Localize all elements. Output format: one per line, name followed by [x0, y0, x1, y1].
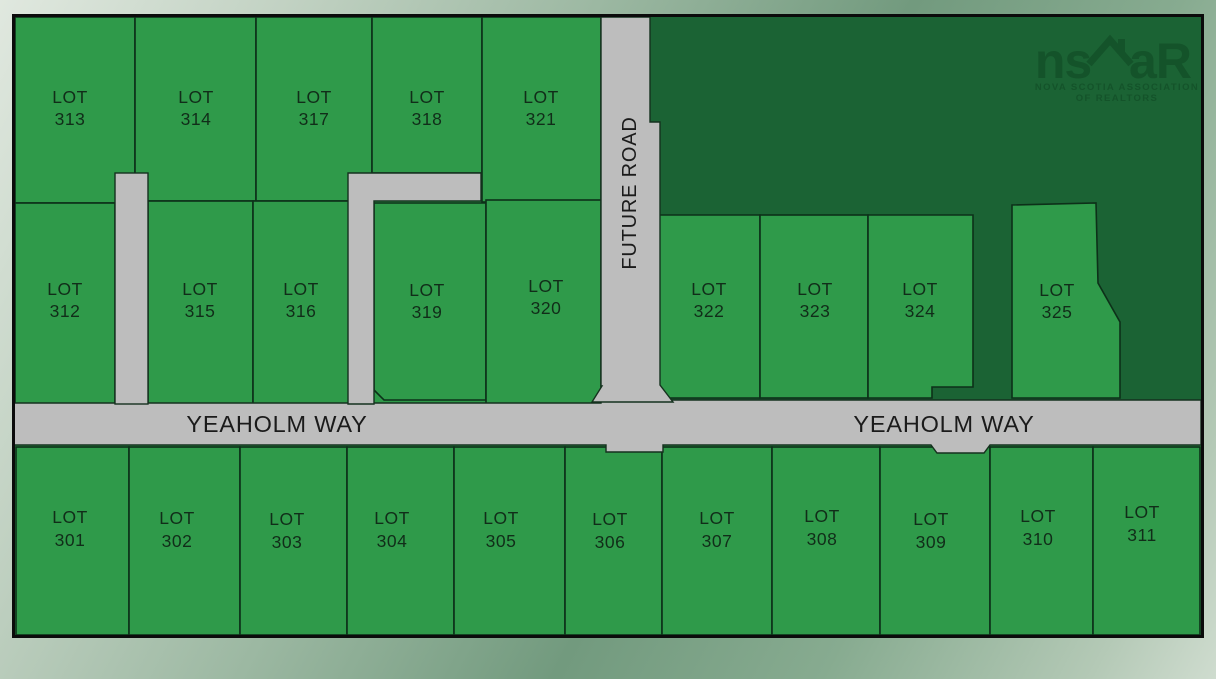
- logo-text-right: aR: [1129, 33, 1192, 89]
- yeaholm-way-label-east: YEAHOLM WAY: [853, 411, 1034, 437]
- lot-319-word: LOT: [409, 280, 445, 300]
- lot-309-number: 309: [916, 532, 947, 552]
- lot-302-word: LOT: [159, 508, 195, 528]
- house-chimney-icon: [1118, 39, 1125, 52]
- lot-303-word: LOT: [269, 509, 305, 529]
- lot-324-number: 324: [905, 301, 936, 321]
- lot-301-word: LOT: [52, 507, 88, 527]
- lot-304-number: 304: [377, 531, 408, 551]
- lot-307-number: 307: [702, 531, 733, 551]
- lot-322-number: 322: [694, 301, 725, 321]
- lot-321-word: LOT: [523, 87, 559, 107]
- lot-311-number: 311: [1127, 525, 1156, 545]
- logo-tagline-line1: NOVA SCOTIA ASSOCIATION: [1035, 82, 1199, 93]
- lot-314-word: LOT: [178, 87, 214, 107]
- lot-308-word: LOT: [804, 506, 840, 526]
- lot-318-word: LOT: [409, 87, 445, 107]
- lot-310-word: LOT: [1020, 506, 1056, 526]
- lot-313-number: 313: [55, 109, 86, 129]
- plat-map: LOT313 LOT314 LOT317 LOT318 LOT321 LOT31…: [0, 0, 1216, 679]
- lot-310-number: 310: [1023, 529, 1054, 549]
- lot-313-word: LOT: [52, 87, 88, 107]
- lot-306-number: 306: [595, 532, 626, 552]
- lot-315-number: 315: [185, 301, 216, 321]
- lot-316-number: 316: [286, 301, 317, 321]
- lot-322-word: LOT: [691, 279, 727, 299]
- lot-323-number: 323: [800, 301, 831, 321]
- lot-305-word: LOT: [483, 508, 519, 528]
- lot-317-number: 317: [299, 109, 330, 129]
- lot-317-word: LOT: [296, 87, 332, 107]
- lot-321-number: 321: [526, 109, 557, 129]
- lot-316-word: LOT: [283, 279, 319, 299]
- future-road-label: FUTURE ROAD: [619, 116, 641, 269]
- lot-312-word: LOT: [47, 279, 83, 299]
- lot-325-word: LOT: [1039, 280, 1075, 300]
- page-background: LOT313 LOT314 LOT317 LOT318 LOT321 LOT31…: [0, 0, 1216, 679]
- driveway-strip-west: [115, 173, 148, 404]
- lot-304-word: LOT: [374, 508, 410, 528]
- lot-309-word: LOT: [913, 509, 949, 529]
- lot-320-number: 320: [531, 298, 562, 318]
- lot-311-word: LOT: [1124, 502, 1160, 522]
- lot-320-word: LOT: [528, 276, 564, 296]
- lot-303-number: 303: [272, 532, 303, 552]
- lot-307-word: LOT: [699, 508, 735, 528]
- logo-text-left: ns: [1035, 33, 1091, 89]
- lot-323-word: LOT: [797, 279, 833, 299]
- lot-318-number: 318: [412, 109, 443, 129]
- lot-319-number: 319: [412, 302, 443, 322]
- lot-314-number: 314: [181, 109, 212, 129]
- lot-305-number: 305: [486, 531, 517, 551]
- lot-325-number: 325: [1042, 302, 1073, 322]
- yeaholm-way-label-west: YEAHOLM WAY: [186, 411, 367, 437]
- lot-312-number: 312: [50, 301, 81, 321]
- lot-302-number: 302: [162, 531, 193, 551]
- lot-308-number: 308: [807, 529, 838, 549]
- lot-306-word: LOT: [592, 509, 628, 529]
- lot-301-number: 301: [55, 530, 86, 550]
- lot-324-word: LOT: [902, 279, 938, 299]
- lot-315-word: LOT: [182, 279, 218, 299]
- logo-tagline-line2: OF REALTORS: [1076, 93, 1159, 104]
